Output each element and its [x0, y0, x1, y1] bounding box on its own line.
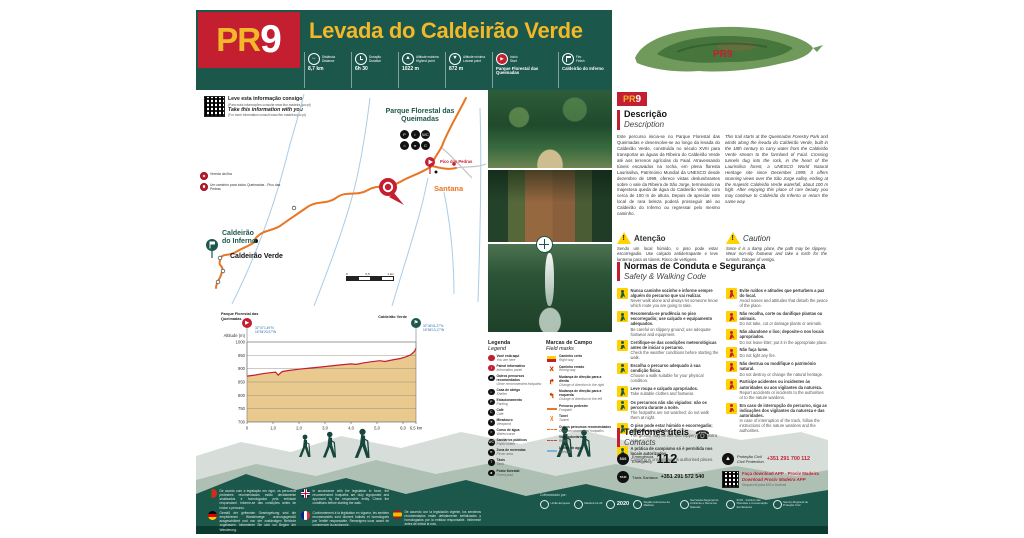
contacts-title-pt: Telefones úteis: [624, 428, 689, 438]
mini-legend-row: Um caminho para todos Queimadas - Pico d…: [200, 183, 290, 192]
svg-text:850: 850: [238, 380, 246, 385]
stat-label: Altitude mínima Lowest point: [463, 55, 485, 63]
stat-item: Duração Duration 6h 30: [351, 52, 398, 88]
sos-icon: SOS: [617, 453, 629, 465]
stat-item: Fim Finish Caldeirão do Inferno: [558, 52, 624, 88]
description-text: Este percurso inicia-se no Parque Flores…: [617, 134, 828, 230]
facility-icon: π: [411, 141, 420, 150]
safety-item-pt: Não recolha, corte ou danifique plantas …: [740, 311, 829, 321]
legend-items: Você está aqui You are here i Painel inf…: [488, 355, 546, 478]
photo-waterfall: [488, 244, 612, 332]
legend-item-en: Café: [497, 412, 504, 416]
legend-item-icon: i: [488, 365, 495, 372]
stat-icon: [355, 53, 367, 65]
red-accent-bar: [617, 262, 620, 281]
civil-protection-label-en: Civil Protection: [737, 459, 764, 464]
legend-item-icon: ≈: [488, 429, 495, 436]
safety-item-text: Participe acidentes ou incidentes às aut…: [740, 379, 829, 399]
safety-item-en: Report accidents or incidents to the aut…: [740, 390, 829, 400]
description-heading: Descrição Description: [617, 110, 667, 130]
caution-en-cell: Caution Since it is a damp place, the pa…: [726, 232, 827, 262]
safety-item-en: Do not leave litter; put it in the appro…: [740, 340, 829, 345]
emergency-number: 112: [656, 451, 677, 466]
field-marks-title-en: Field marks: [546, 346, 574, 352]
partner-logo: Secretaria Regional de Ambiente e Recurs…: [680, 499, 723, 509]
taxi-label: Táxis Santana: [632, 475, 658, 480]
field-mark-text: Linhas de água Streams: [559, 447, 583, 455]
field-marks-title-pt: Marcas de Campo: [546, 340, 592, 346]
safety-item-text: Evite ruídos e atitudes que perturbem a …: [740, 288, 829, 308]
scale-segments: [346, 276, 394, 281]
legend-item: ☀ Miradouro Viewpoint: [488, 419, 546, 427]
legend-item-en: Other recommended footpaths: [497, 382, 542, 386]
waterfall-streak: [545, 253, 554, 306]
legend-item-en: Viewpoint: [497, 422, 511, 426]
stat-label: Duração Duration: [369, 55, 381, 63]
footer-language-notes: De acordo com a legislação em vigor, os …: [196, 487, 496, 533]
description-title-pt: Descrição: [624, 110, 667, 120]
end-lon: 16°56'13,17''W: [423, 328, 444, 332]
field-mark-icon: )(: [546, 416, 557, 422]
legend-item-icon: T: [488, 459, 495, 466]
safety-item: Não abandone o lixo; deposite-o nos loca…: [726, 329, 828, 344]
logo-emblem-icon: [540, 500, 549, 509]
field-mark-en: Tunnel: [559, 418, 569, 422]
stat-value: 8,7 km: [308, 67, 349, 73]
stat-icon: ↔: [308, 53, 320, 65]
taxi-number: +351 291 572 540: [661, 474, 705, 480]
facility-icon: ⌂: [400, 141, 409, 150]
logo-emblem-icon: [680, 500, 689, 509]
safety-item-en: The footpaths are not watched: do not wa…: [631, 410, 720, 420]
map-scale-bar: 0 0,5 1 km: [346, 272, 394, 281]
field-mark-text: Vias rodoviárias Roads: [559, 436, 584, 444]
safety-item-en: Do not destroy or change the natural her…: [740, 372, 829, 377]
legend-title-en: Legend: [488, 346, 506, 352]
safety-item-text: Nunca caminhe sozinho e informe sempre a…: [631, 288, 720, 308]
legend-item: ⌂ Casa de abrigo Shelter: [488, 389, 546, 397]
profile-end-coords: 32°46'41,27''N 16°56'13,17''W: [423, 324, 459, 332]
facility-icon: P: [400, 130, 409, 139]
field-mark-en: Wrong way: [559, 368, 576, 372]
mini-legend-label: Vereda da Ilha: [210, 172, 232, 176]
safety-item: Não recolha, corte ou danifique plantas …: [726, 311, 828, 326]
start-pin: [425, 157, 435, 174]
legend-item-en: Taxis: [497, 462, 505, 466]
logo-label: Região Autónoma da Madeira: [644, 501, 676, 508]
legend-item-text: Miradouro Viewpoint: [497, 419, 513, 427]
mini-legend-label: Um caminho para todos Queimadas - Pico d…: [210, 183, 290, 192]
language-note: Conformément à la législation en vigueur…: [301, 511, 389, 528]
language-note-text: Gemäß der geltenden Gesetzgebung sind di…: [220, 511, 297, 532]
safety-item-pt: Recomenda-se prudência no piso escorrega…: [631, 311, 720, 326]
svg-text:950: 950: [238, 353, 246, 358]
app-note: Disponível para iOS e Android: [742, 483, 819, 487]
safety-item-en: Do not light any fire.: [740, 353, 776, 358]
safety-item: Nunca caminhe sozinho e informe sempre a…: [617, 288, 719, 308]
field-mark-en: Change of direction to the right: [559, 383, 604, 387]
safety-item: Escolha o percurso adequado à sua condiç…: [617, 363, 719, 383]
mini-legend-icon: [200, 172, 208, 180]
safety-item-pt: Não abandone o lixo; deposite-o nos loca…: [740, 329, 829, 339]
safety-title-en: Safety & Walking Code: [624, 272, 766, 282]
stat-top: ▲ Altitude máxima Highest point: [402, 53, 443, 65]
safety-item-en: Do not take, cut or damage plants or ani…: [740, 321, 829, 326]
pr-prefix: PR: [216, 21, 260, 59]
caution-en-head: Caution: [726, 232, 827, 244]
legend-item-text: Curso de água Watercourse: [497, 429, 520, 437]
map-label-caldeirao-inferno: Caldeirão do Inferno: [222, 230, 256, 246]
pr-badge-prefix: PR: [623, 94, 636, 104]
field-mark-icon: ↰: [546, 392, 557, 400]
logo-label: Madeira 14-20: [584, 502, 602, 505]
safety-item-pt: Participe acidentes ou incidentes às aut…: [740, 379, 829, 389]
description-en: This trail starts at the Queimadas Fores…: [725, 134, 828, 230]
logo-label: Secretaria Regional de Ambiente e Recurs…: [690, 499, 722, 509]
taxi-icon: TAXI: [617, 471, 629, 483]
profile-start-coords: 32°47'1,49''N 16°54'20,07''W: [255, 326, 276, 334]
svg-text:900: 900: [238, 366, 246, 371]
warning-triangle-icon: [726, 232, 740, 244]
safety-item-en: Take suitable clothes and footwear.: [631, 391, 699, 396]
map-label-santana: Santana: [434, 184, 463, 193]
field-mark-text: Caminho certo Right way: [559, 355, 582, 363]
safety-item-icon: [726, 403, 737, 414]
legend-item: ≈ Curso de água Watercourse: [488, 429, 546, 437]
safety-item: Recomenda-se prudência no piso escorrega…: [617, 311, 719, 337]
civil-protection-number: +351 291 700 112: [767, 456, 810, 462]
footer-logos: Cofinanciado por: União Europeia Madeira…: [540, 493, 818, 509]
logo-emblem-icon: [606, 500, 615, 509]
legend-item-icon: ⌂: [488, 389, 495, 396]
warning-triangle-icon: [617, 232, 631, 244]
map-label-caldeirao-verde: Caldeirão Verde: [230, 253, 283, 260]
logo-row: União Europeia Madeira 14-20 2020 Região…: [540, 499, 818, 509]
legend-column: Legenda Legend Você está aqui You are he…: [488, 340, 546, 460]
header-band: PR 9 Levada do Caldeirão Verde ↔ Distânc…: [196, 10, 612, 90]
safety-item: Evite ruídos e atitudes que perturbem a …: [726, 288, 828, 308]
field-mark-text: Outros percursos recomendados Other reco…: [559, 426, 611, 434]
trail-map: Leve esta informação consigo (Para mais …: [196, 90, 488, 312]
field-mark-pt: Mudança de direção para a direita: [559, 375, 601, 383]
map-mini-legend: Vereda da Ilha Um caminho para todos Que…: [200, 172, 290, 194]
partner-logo: Serviço Regional de Proteção Civil: [773, 500, 816, 509]
stat-label: Distância Distance: [322, 55, 335, 63]
safety-item-icon: [726, 288, 737, 299]
legend-item-en: Shelter: [497, 392, 507, 396]
poi-dot: [435, 171, 438, 174]
logo-emblem-icon: [633, 500, 642, 509]
partner-logo: União Europeia: [540, 500, 570, 509]
stat-label-en: Start: [510, 59, 517, 63]
field-mark-icon: [546, 450, 557, 452]
stat-icon: [562, 53, 574, 65]
partner-logo: 2020: [606, 500, 629, 509]
language-note-text: Conformément à la législation en vigueur…: [313, 511, 390, 528]
field-mark-icon: [546, 440, 557, 441]
field-mark-item: Caminho certo Right way: [546, 355, 612, 363]
safety-item-pt: Os percursos não são vigiados: não os pe…: [631, 400, 720, 410]
logo-emblem-icon: [574, 500, 583, 509]
legend-item-text: Casa de abrigo Shelter: [497, 389, 521, 397]
safety-item-icon: [726, 329, 737, 340]
safety-item: Não faça lume. Do not light any fire.: [726, 347, 828, 358]
safety-item-icon: [617, 311, 628, 322]
app-download-block: Faça download APP - Prociv Madeira Downl…: [722, 471, 827, 488]
safety-item-text: Leve roupa e calçado apropriados. Take s…: [631, 386, 699, 397]
caution-text-pt: Sendo um local húmido, o piso pode estar…: [617, 246, 718, 262]
field-mark-pt: Mudança de direção para a esquerda: [559, 389, 601, 397]
safety-item-icon: [617, 386, 628, 397]
legend-item-text: Estacionamento Parking: [497, 399, 522, 407]
legend-item-icon: WC: [488, 439, 495, 446]
caution-title-pt: Atenção: [634, 234, 666, 243]
field-mark-icon: ↱: [546, 378, 557, 386]
logo-label: IFCN · Instituto das Florestas e Conserv…: [737, 499, 769, 509]
svg-text:800: 800: [238, 393, 246, 398]
safety-item-text: Certifique-se das condições meteorológic…: [631, 340, 720, 360]
safety-item-text: Não abandone o lixo; deposite-o nos loca…: [740, 329, 829, 344]
legend-title-pt: Legenda: [488, 340, 510, 346]
flag-icon: [208, 489, 217, 498]
legend-item: T Táxis Taxis: [488, 459, 546, 467]
stat-label-en: Lowest point: [463, 59, 481, 63]
safety-item-icon: [726, 379, 737, 390]
safety-title-pt: Normas de Conduta e Segurança: [624, 262, 766, 272]
stat-item: ▼ Altitude mínima Lowest point 872 m: [445, 52, 492, 88]
stat-top: Duração Duration: [355, 53, 396, 65]
safety-item-text: Os percursos não são vigiados: não os pe…: [631, 400, 720, 420]
island-pr9-marker: PR9: [713, 49, 733, 60]
logo-label: União Europeia: [551, 502, 570, 505]
safety-item: Participe acidentes ou incidentes às aut…: [726, 379, 828, 399]
stat-icon: ▶: [496, 53, 508, 65]
field-mark-icon: [546, 356, 557, 362]
facility-icon: WC: [421, 130, 430, 139]
legend-item: π Zona de merendas Picnic area: [488, 449, 546, 457]
logo-emblem-icon: [726, 500, 735, 509]
flag-icon: [393, 510, 402, 519]
inferno-line1: Caldeirão: [222, 230, 254, 237]
finish-flag-pin: [206, 239, 218, 258]
field-mark-en: Footpath: [559, 408, 572, 412]
field-mark-en: Right way: [559, 358, 573, 362]
compass-icon: [536, 236, 553, 253]
scale-end: 1 km: [387, 272, 394, 276]
language-note-text: De acordo com a legislação em vigor, os …: [220, 489, 297, 510]
legend-item-icon: ☀: [488, 419, 495, 426]
legend-item-icon: P: [488, 399, 495, 406]
field-mark-text: Percurso pedestre Footpath: [559, 405, 588, 413]
field-mark-text: Mudança de direção para a direita Change…: [559, 376, 612, 388]
stat-label-en: Distance: [322, 59, 334, 63]
map-label-queimadas: Parque Florestal das Queimadas: [372, 108, 468, 124]
partner-logo: Madeira 14-20: [574, 500, 603, 509]
emergency-contact: SOS Emergência Emergency 112: [617, 451, 722, 466]
stat-label-en: Finish: [576, 59, 585, 63]
legend-item: i Painel informativo Information panel: [488, 365, 546, 373]
emergency-label-en: Emergency: [632, 459, 652, 464]
profile-end-name: Caldeirão Verde: [361, 315, 407, 320]
stat-top: ▶ Início Start: [496, 53, 556, 65]
description-title-en: Description: [624, 120, 667, 130]
field-mark-en: Streams: [559, 450, 571, 454]
safety-item-icon: [617, 288, 628, 299]
pr-badge-small: PR 9: [617, 92, 647, 106]
legend-item: ♣ Posto florestal Forest post: [488, 470, 546, 478]
safety-item: Não destrua ou modifique o património na…: [726, 361, 828, 376]
scale-mid: 0,5: [365, 272, 369, 276]
svg-text:1000: 1000: [236, 340, 246, 345]
legend-item-en: You are here: [497, 358, 516, 362]
contacts-rows: SOS Emergência Emergency 112 ▲ Proteção …: [617, 451, 828, 488]
facility-icon: i: [411, 130, 420, 139]
civil-protection-contact: ▲ Proteção Civil Civil Protection +351 2…: [722, 451, 827, 466]
map-label-pico-das-pedras: Pico das Pedras: [440, 160, 480, 165]
app-qr-code: [722, 471, 739, 488]
legend-item-pt: Outros percursos recomendados: [497, 374, 525, 382]
caution-pt-cell: Atenção Sendo um local húmido, o piso po…: [617, 232, 718, 262]
safety-item-en: Choose a walk suitable for your physical…: [631, 373, 720, 383]
language-note-text: De acuerdo con la legislación vigente, l…: [405, 510, 482, 527]
civil-protection-labels: Proteção Civil Civil Protection: [737, 454, 764, 464]
svg-text:750: 750: [238, 406, 246, 411]
safety-item-pt: Escolha o percurso adequado à sua condiç…: [631, 363, 720, 373]
field-mark-text: Caminho errado Wrong way: [559, 366, 584, 374]
stat-value: Caldeirão do Inferno: [562, 67, 622, 72]
logo-label: Serviço Regional de Proteção Civil: [783, 501, 815, 508]
legend-item: WC Sanitários públicos Public toilets: [488, 439, 546, 447]
safety-item-text: Não destrua ou modifique o património na…: [740, 361, 829, 376]
contacts-section: Telefones úteis Contacts ☎ SOS Emergênci…: [617, 428, 828, 488]
red-accent-bar: [617, 428, 620, 447]
contacts-heading: Telefones úteis Contacts ☎: [617, 428, 828, 447]
legend-item-text: Café Café: [497, 409, 504, 417]
safety-item: Certifique-se das condições meteorológic…: [617, 340, 719, 360]
phone-icon: ☎: [695, 428, 710, 447]
safety-item-pt: Não destrua ou modifique o património na…: [740, 361, 829, 371]
inferno-line2: do Inferno: [222, 238, 256, 245]
stat-icon: ▼: [449, 53, 461, 65]
safety-item-en: Never walk alone and always let someone …: [631, 298, 720, 308]
legend-item-icon: π: [488, 449, 495, 456]
trail-title: Levada do Caldeirão Verde: [309, 18, 609, 44]
start-lon: 16°54'20,07''W: [255, 330, 276, 334]
stat-label: Fim Finish: [576, 55, 585, 63]
red-accent-bar: [617, 110, 620, 130]
language-note: De acuerdo con la legislación vigente, l…: [393, 510, 481, 527]
safety-item-icon: [726, 311, 737, 322]
safety-item-text: Recomenda-se prudência no piso escorrega…: [631, 311, 720, 337]
safety-item-pt: Certifique-se das condições meteorológic…: [631, 340, 720, 350]
stat-item: ▶ Início Start Parque Florestal das Quei…: [492, 52, 558, 88]
profile-start-pin: ▶: [242, 318, 252, 328]
safety-item-en: Check the weather conditions before star…: [631, 350, 720, 360]
field-mark-item: ↱ Mudança de direção para a direita Chan…: [546, 376, 612, 388]
caution-title-en: Caution: [743, 234, 771, 243]
app-texts: Faça download APP - Prociv Madeira Downl…: [742, 471, 819, 487]
field-mark-item: )( Túnel Tunnel: [546, 415, 612, 423]
field-mark-icon: [546, 429, 557, 430]
safety-item-icon: [617, 363, 628, 374]
pr-code-badge: PR 9: [198, 12, 300, 68]
safety-heading: Normas de Conduta e Segurança Safety & W…: [617, 262, 766, 281]
safety-item-en: Avoid noises and attitudes that disturb …: [740, 298, 829, 308]
legend-item-text: Posto florestal Forest post: [497, 470, 520, 478]
field-mark-en: Change of direction to the left: [559, 397, 602, 401]
emergency-labels: Emergência Emergency: [632, 454, 653, 464]
trail-stats: ↔ Distância Distance 8,7 km Duração: [304, 52, 610, 88]
photo-forest-path: [488, 90, 612, 168]
legend-item-en: Public toilets: [497, 442, 516, 446]
legend-item-icon: C: [488, 409, 495, 416]
stat-value: 6h 30: [355, 67, 396, 73]
legend-item-en: Information panel: [497, 368, 522, 372]
stat-label: Início Start: [510, 55, 518, 63]
flag-icon: [301, 511, 310, 520]
legend-item-text: Táxis Taxis: [497, 459, 505, 467]
taxi-contact: TAXI Táxis Santana +351 291 572 540: [617, 471, 722, 483]
cofinanced-label: Cofinanciado por:: [540, 493, 818, 497]
safety-item-pt: Evite ruídos e atitudes que perturbem a …: [740, 288, 829, 298]
pr-badge-number: 9: [635, 94, 641, 105]
field-mark-item: Linhas de água Streams: [546, 447, 612, 455]
field-mark-item: Vias rodoviárias Roads: [546, 436, 612, 444]
legend-item-text: Você está aqui You are here: [497, 355, 520, 363]
facility-icons: P i WC ⌂ π C: [400, 130, 436, 150]
caution-section: Atenção Sendo um local húmido, o piso po…: [617, 232, 828, 262]
field-mark-icon: X: [546, 366, 557, 373]
flag-icon: [208, 511, 217, 520]
legend-item-en: Forest post: [497, 473, 514, 477]
stat-top: ↔ Distância Distance: [308, 53, 349, 65]
photo-levada-trail: [488, 170, 612, 242]
stat-label-en: Duration: [369, 59, 381, 63]
stat-value: 872 m: [449, 67, 490, 73]
profile-end-pin: ⚑: [411, 318, 421, 328]
safety-item-en: Be careful on slippery ground; use adequ…: [631, 327, 720, 337]
safety-item: Leve roupa e calçado apropriados. Take s…: [617, 386, 719, 397]
madeira-island-map: PR9: [617, 10, 824, 90]
safety-item-icon: [617, 400, 628, 411]
caution-text-en: Since it is a damp place, the path may b…: [726, 246, 827, 262]
safety-item-text: Escolha o percurso adequado à sua condiç…: [631, 363, 720, 383]
field-mark-item: ↰ Mudança de direção para a esquerda Cha…: [546, 390, 612, 402]
field-mark-en: Roads: [559, 439, 569, 443]
safety-item-pt: Nunca caminhe sozinho e informe sempre a…: [631, 288, 720, 298]
field-mark-icon: [546, 408, 557, 410]
legend-section: Legenda Legend Você está aqui You are he…: [488, 340, 612, 460]
caution-pt-head: Atenção: [617, 232, 718, 244]
field-marks-title: Marcas de Campo Field marks: [546, 340, 612, 352]
legend-title: Legenda Legend: [488, 340, 546, 352]
field-mark-text: Mudança de direção para a esquerda Chang…: [559, 390, 612, 402]
legend-item-icon: [488, 355, 495, 362]
legend-item-en: Parking: [497, 402, 508, 406]
logo-label: 2020: [617, 501, 629, 508]
field-mark-text: Túnel Tunnel: [559, 415, 569, 423]
legend-item-icon: ⇄: [488, 375, 495, 382]
partner-logo: IFCN · Instituto das Florestas e Conserv…: [726, 499, 769, 509]
stat-value: 1022 m: [402, 67, 443, 73]
legend-item: ⇄ Outros percursos recomendados Other re…: [488, 375, 546, 387]
mini-legend-row: Vereda da Ilha: [200, 172, 290, 180]
poster: PR 9 Levada do Caldeirão Verde ↔ Distânc…: [196, 10, 828, 534]
stat-icon: ▲: [402, 53, 414, 65]
legend-item-text: Sanitários públicos Public toilets: [497, 439, 527, 447]
legend-item: C Café Café: [488, 409, 546, 417]
legend-item-text: Zona de merendas Picnic area: [497, 449, 526, 457]
